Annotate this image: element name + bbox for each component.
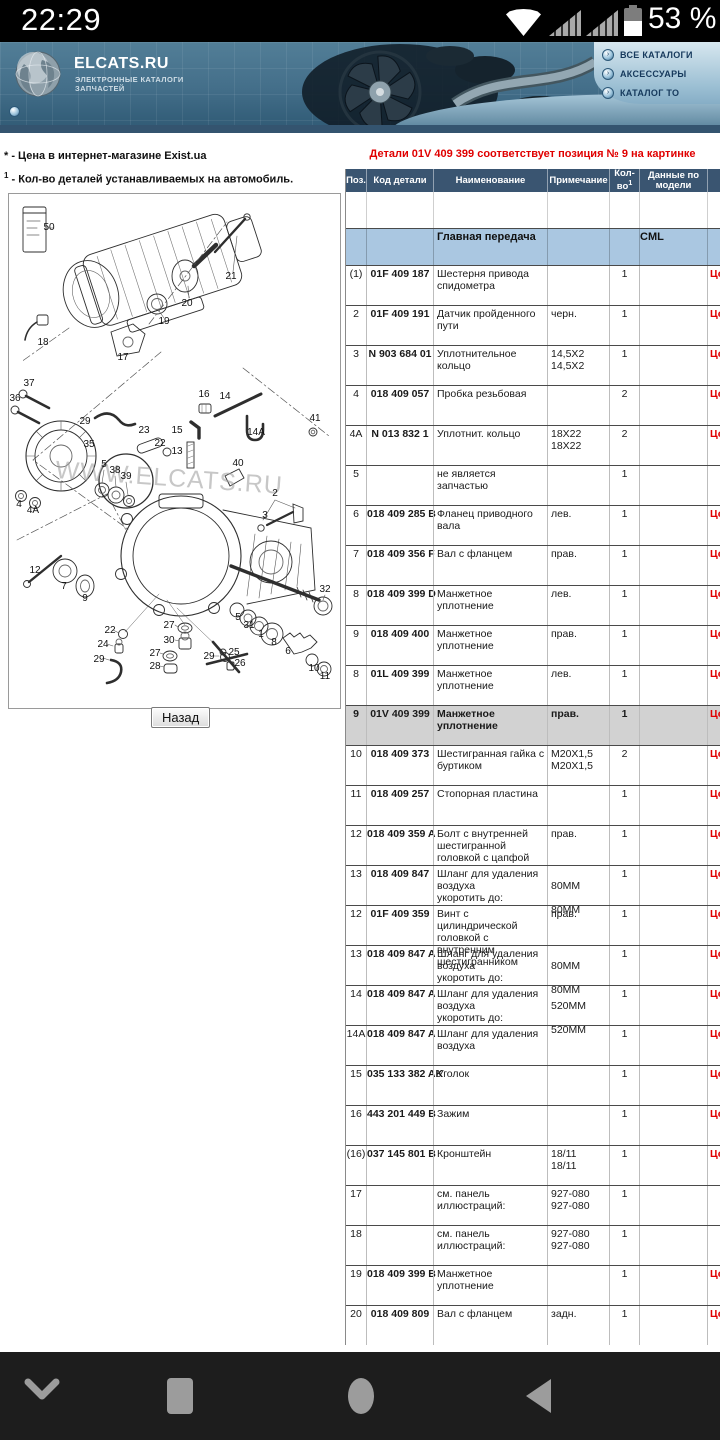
cell-code: 018 409 356 F — [366, 546, 433, 585]
table-row: 14018 409 847 AШланг для удаления воздух… — [346, 985, 720, 1025]
header-nav-item-2[interactable]: ›КАТАЛОГ ТО — [594, 83, 720, 102]
diagram-callout: 4 — [16, 499, 22, 510]
cell-note — [547, 266, 609, 305]
cell-pos: 13 — [346, 946, 366, 985]
cell-model — [639, 786, 707, 825]
cell-model — [639, 426, 707, 465]
cell-code — [366, 1226, 433, 1265]
cell-qty: 1 — [609, 706, 639, 745]
cell-model — [639, 346, 707, 385]
cell-name: Манжетное уплотнение — [433, 626, 547, 665]
diagram-art — [11, 204, 332, 683]
price-link[interactable]: Цена — [707, 426, 720, 465]
cell-note — [547, 466, 609, 505]
diagram-callout: 22 — [154, 438, 166, 449]
diagram-callout: 24 — [97, 639, 109, 650]
table-row: 4018 409 057Пробка резьбовая2Цена — [346, 385, 720, 425]
cell-qty: 1 — [609, 626, 639, 665]
cell-model — [639, 1146, 707, 1185]
header-nav-panel: ›ВСЕ КАТАЛОГИ›АКСЕССУАРЫ›КАТАЛОГ ТО — [594, 42, 720, 104]
back-button[interactable]: Назад — [151, 707, 210, 728]
cell-note: прав. — [547, 626, 609, 665]
cell-name: не является запчастью — [433, 466, 547, 505]
cell-pos: 5 — [346, 466, 366, 505]
cell-pos: 19 — [346, 1266, 366, 1305]
header-nav-label: ВСЕ КАТАЛОГИ — [620, 50, 693, 60]
diagram-callout: 15 — [171, 425, 183, 436]
price-link[interactable]: Цена — [707, 946, 720, 985]
cell-qty: 1 — [609, 786, 639, 825]
cell-price — [707, 1226, 720, 1265]
empty-row — [346, 192, 720, 229]
cell-model — [639, 306, 707, 345]
logo-subtitle: ЭЛЕКТРОННЫЕ КАТАЛОГИ ЗАПЧАСТЕЙ — [75, 75, 184, 93]
diagram-callout: 32 — [319, 584, 331, 595]
cell-pos: 12 — [346, 906, 366, 945]
price-link[interactable]: Цена — [707, 306, 720, 345]
table-row: 19018 409 399 BМанжетное уплотнение1Цена — [346, 1265, 720, 1305]
price-link[interactable]: Цена — [707, 666, 720, 705]
diagram-callout: 26 — [234, 658, 246, 669]
clock: 22:29 — [21, 2, 101, 38]
col-header-note: Примечание — [547, 169, 609, 192]
cell-pos: 16 — [346, 1106, 366, 1145]
cell-model — [639, 386, 707, 425]
diagram-callout: 5 — [235, 612, 241, 623]
cell-pos: (16) — [346, 1146, 366, 1185]
cell-name: Пробка резьбовая — [433, 386, 547, 425]
cell-qty: 1 — [609, 506, 639, 545]
cell-code: 01V 409 399 — [366, 706, 433, 745]
cell-model — [639, 506, 707, 545]
table-row: 5не является запчастью1 — [346, 465, 720, 505]
back-triangle-icon[interactable] — [526, 1379, 551, 1413]
table-row: 15035 133 382 AKУголок1Цена — [346, 1065, 720, 1105]
price-link[interactable]: Цена — [707, 1106, 720, 1145]
diagram-callout: 21 — [225, 271, 237, 282]
cell-model — [639, 266, 707, 305]
cell-code: N 903 684 01 — [366, 346, 433, 385]
col-header-model: Данные по модели — [639, 169, 707, 192]
nav-bullet-icon: › — [602, 49, 614, 61]
cell-name: Болт с внутренней шестигранной головкой … — [433, 826, 547, 865]
cell-pos: 9 — [346, 626, 366, 665]
diagram-callout: 5 — [101, 459, 107, 470]
cell-model — [639, 1106, 707, 1145]
diagram-callout: 13 — [171, 446, 183, 457]
group-model: CML — [639, 229, 707, 265]
status-bar: 22:29 53 % — [0, 0, 720, 42]
table-row: 6018 409 285 BФланец приводного валалев.… — [346, 505, 720, 545]
table-row: 1201F 409 359Винт с цилиндрической голов… — [346, 905, 720, 945]
diagram-callout: 41 — [309, 413, 321, 424]
cell-name: Шестерня привода спидометра — [433, 266, 547, 305]
cell-model — [639, 826, 707, 865]
cell-pos: 10 — [346, 746, 366, 785]
table-row: 16443 201 449 BЗажим1Цена — [346, 1105, 720, 1145]
cell-pos: 12 — [346, 826, 366, 865]
cell-code — [366, 466, 433, 505]
cell-note: M20X1,5 M20X1,5 — [547, 746, 609, 785]
cell-code: 018 409 809 — [366, 1306, 433, 1345]
price-link[interactable]: Цена — [707, 506, 720, 545]
cell-pos: 4A — [346, 426, 366, 465]
parts-table: Поз. Код детали Наименование Примечание … — [345, 169, 720, 1345]
cell-model — [639, 746, 707, 785]
diagram-callout: 2 — [272, 488, 278, 499]
cell-name: Винт с цилиндрической головкой с внутрен… — [433, 906, 547, 945]
cell-qty: 1 — [609, 986, 639, 1025]
table-row: 18см. панель иллюстраций:927-080 927-080… — [346, 1225, 720, 1265]
diagram-callout: 4A — [27, 505, 40, 516]
cell-pos: 3 — [346, 346, 366, 385]
cell-name: Шланг для удаления воздуха укоротить до: — [433, 946, 547, 985]
price-link[interactable]: Цена — [707, 266, 720, 305]
cell-pos: 9 — [346, 706, 366, 745]
diagram-callout: 7 — [61, 581, 67, 592]
col-header-price: Цена — [707, 169, 720, 192]
table-row: 14A018 409 847 AШланг для удаления возду… — [346, 1025, 720, 1065]
cell-name: Шланг для удаления воздуха — [433, 1026, 547, 1065]
table-row: 801L 409 399Манжетное уплотнениелев.1Цен… — [346, 665, 720, 705]
col-header-qty: Кол-во1 — [609, 169, 639, 192]
cell-note — [547, 1066, 609, 1105]
battery-percent: 53 % — [648, 2, 716, 36]
price-link[interactable]: Цена — [707, 706, 720, 745]
cell-pos: 8 — [346, 586, 366, 625]
diagram-callout: 30 — [163, 635, 175, 646]
price-link[interactable]: Цена — [707, 1066, 720, 1105]
cell-qty: 1 — [609, 1226, 639, 1265]
table-header-row: Поз. Код детали Наименование Примечание … — [346, 169, 720, 192]
logo-subtitle-line2: ЗАПЧАСТЕЙ — [75, 84, 184, 93]
cell-note — [547, 1106, 609, 1145]
diagram-callout: 16 — [198, 389, 210, 400]
header-nav-item-1[interactable]: ›АКСЕССУАРЫ — [594, 64, 720, 83]
cell-note: 14,5X2 14,5X2 — [547, 346, 609, 385]
cell-pos: 11 — [346, 786, 366, 825]
cell-code: 018 409 285 B — [366, 506, 433, 545]
cell-code: 018 409 847 A — [366, 986, 433, 1025]
header-nav-item-0[interactable]: ›ВСЕ КАТАЛОГИ — [594, 45, 720, 64]
table-row: 201F 409 191Датчик пройденного путичерн.… — [346, 305, 720, 345]
price-link[interactable]: Цена — [707, 626, 720, 665]
cell-code: 037 145 801 B — [366, 1146, 433, 1185]
cell-qty: 1 — [609, 866, 639, 905]
cell-name: Манжетное уплотнение — [433, 666, 547, 705]
logo-title[interactable]: ELCATS.RU — [74, 55, 169, 73]
cell-qty: 1 — [609, 1266, 639, 1305]
diagram-callout: 36 — [9, 393, 21, 404]
cell-code: 018 409 057 — [366, 386, 433, 425]
diagram-callout: 39 — [120, 471, 132, 482]
price-link[interactable]: Цена — [707, 906, 720, 945]
cell-pos: (1) — [346, 266, 366, 305]
cell-pos: 20 — [346, 1306, 366, 1345]
cell-qty: 2 — [609, 426, 639, 465]
diagram-callout: 23 — [138, 425, 150, 436]
diagram-callout: 8 — [271, 637, 277, 648]
wifi-icon — [506, 9, 541, 36]
diagram-callout: 11 — [320, 671, 331, 682]
header-bullet-icon — [9, 106, 20, 117]
cell-code: N 013 832 1 — [366, 426, 433, 465]
cell-name: Фланец приводного вала — [433, 506, 547, 545]
cell-pos: 6 — [346, 506, 366, 545]
table-row: 901V 409 399Манжетное уплотнениеправ.1Це… — [346, 705, 720, 745]
nav-bullet-icon: › — [602, 87, 614, 99]
cell-code: 018 409 400 — [366, 626, 433, 665]
price-link[interactable]: Цена — [707, 1146, 720, 1185]
group-row: Главная передача CML — [346, 229, 720, 265]
cell-code: 018 409 847 A — [366, 1026, 433, 1065]
diagram-callout: 35 — [83, 439, 95, 450]
logo-subtitle-line1: ЭЛЕКТРОННЫЕ КАТАЛОГИ — [75, 75, 184, 84]
cell-qty: 1 — [609, 1146, 639, 1185]
diagram-callout: 22 — [104, 625, 116, 636]
cell-note: прав. — [547, 826, 609, 865]
table-row: 20018 409 809Вал с фланцемзадн.1Цена — [346, 1305, 720, 1345]
table-row: 11018 409 257Стопорная пластина1Цена — [346, 785, 720, 825]
cell-model — [639, 666, 707, 705]
cell-qty: 1 — [609, 1026, 639, 1065]
battery-icon — [624, 8, 642, 36]
price-link[interactable]: Цена — [707, 586, 720, 625]
group-name: Главная передача — [433, 229, 547, 265]
diagram-watermark: WWW.ELCATS.RU — [55, 456, 284, 500]
cell-note: лев. — [547, 586, 609, 625]
diagram-callout: 50 — [43, 222, 55, 233]
cell-code: 01F 409 191 — [366, 306, 433, 345]
cell-note — [547, 386, 609, 425]
highlight-alert: Детали 01V 409 399 соответствует позиция… — [345, 148, 720, 160]
table-row: 3N 903 684 01Уплотнительное кольцо14,5X2… — [346, 345, 720, 385]
cell-note: прав. — [547, 906, 609, 945]
diagram-callout: 29 — [79, 416, 91, 427]
table-row: 8018 409 399 DМанжетное уплотнениелев.1Ц… — [346, 585, 720, 625]
cell-name: Уголок — [433, 1066, 547, 1105]
diagram-callout: 3 — [262, 510, 268, 521]
cell-note: 80MM 80MM — [547, 946, 609, 985]
table-row: 7018 409 356 FВал с фланцемправ.1Цена — [346, 545, 720, 585]
cell-note — [547, 1026, 609, 1065]
price-note: * - Цена в интернет-магазине Exist.ua — [4, 150, 206, 162]
cell-model — [639, 1226, 707, 1265]
table-row: 17см. панель иллюстраций:927-080 927-080… — [346, 1185, 720, 1225]
price-link[interactable]: Цена — [707, 986, 720, 1025]
table-row: (16)037 145 801 BКронштейн18/11 18/111Це… — [346, 1145, 720, 1185]
price-link[interactable]: Цена — [707, 1306, 720, 1345]
cell-name: Зажим — [433, 1106, 547, 1145]
cell-code: 018 409 847 — [366, 866, 433, 905]
diagram-callout: 38 — [109, 465, 121, 476]
cell-qty: 1 — [609, 346, 639, 385]
cell-name: Датчик пройденного пути — [433, 306, 547, 345]
cell-price — [707, 466, 720, 505]
cell-name: Вал с фланцем — [433, 546, 547, 585]
cell-model — [639, 1026, 707, 1065]
table-row: 13018 409 847Шланг для удаления воздуха … — [346, 865, 720, 905]
price-link[interactable]: Цена — [707, 866, 720, 905]
cell-code: 018 409 847 A — [366, 946, 433, 985]
cell-name: Шланг для удаления воздуха укоротить до: — [433, 986, 547, 1025]
header-nav-label: КАТАЛОГ ТО — [620, 88, 679, 98]
cell-note — [547, 786, 609, 825]
table-body: (1)01F 409 187Шестерня привода спидометр… — [346, 265, 720, 1345]
price-link[interactable]: Цена — [707, 826, 720, 865]
cell-code: 018 409 399 D — [366, 586, 433, 625]
diagram-callout: 25 — [228, 647, 240, 658]
price-link[interactable]: Цена — [707, 1026, 720, 1065]
diagram-callout: 29 — [93, 654, 105, 665]
cell-name: Манжетное уплотнение — [433, 1266, 547, 1305]
cell-model — [639, 1066, 707, 1105]
cell-qty: 1 — [609, 266, 639, 305]
cell-qty: 1 — [609, 1186, 639, 1225]
cell-qty: 1 — [609, 546, 639, 585]
cell-code: 01F 409 187 — [366, 266, 433, 305]
cell-pos: 7 — [346, 546, 366, 585]
cell-pos: 8 — [346, 666, 366, 705]
cell-note: 18/11 18/11 — [547, 1146, 609, 1185]
diagram-callout: 9 — [82, 593, 88, 604]
cell-price — [707, 1186, 720, 1225]
cell-qty: 1 — [609, 946, 639, 985]
cell-qty: 1 — [609, 586, 639, 625]
table-row: 9018 409 400Манжетное уплотнениеправ.1Це… — [346, 625, 720, 665]
qty-note: 1 - Кол-во деталей устанавливаемых на ав… — [4, 171, 293, 186]
cell-name: Манжетное уплотнение — [433, 706, 547, 745]
cell-note: 18X22 18X22 — [547, 426, 609, 465]
table-row: 12018 409 359 AБолт с внутренней шестигр… — [346, 825, 720, 865]
diagram-callout: 14A — [247, 427, 265, 438]
site-header: ELCATS.RU ЭЛЕКТРОННЫЕ КАТАЛОГИ ЗАПЧАСТЕЙ… — [0, 42, 720, 133]
cell-code: 01L 409 399 — [366, 666, 433, 705]
table-row: (1)01F 409 187Шестерня привода спидометр… — [346, 265, 720, 305]
diagram-callout: 6 — [285, 646, 291, 657]
cell-model — [639, 946, 707, 985]
android-nav-bar — [0, 1352, 720, 1440]
price-link[interactable]: Цена — [707, 346, 720, 385]
table-row: 13018 409 847 AШланг для удаления воздух… — [346, 945, 720, 985]
diagram-callout: 37 — [23, 378, 35, 389]
col-header-pos: Поз. — [346, 169, 366, 192]
cell-pos: 13 — [346, 866, 366, 905]
diagram-callout: 27 — [163, 620, 175, 631]
cell-code: 018 409 359 A — [366, 826, 433, 865]
cell-model — [639, 706, 707, 745]
cell-qty: 1 — [609, 1306, 639, 1345]
cell-qty: 1 — [609, 1106, 639, 1145]
header-nav-label: АКСЕССУАРЫ — [620, 69, 687, 79]
home-circle-icon[interactable] — [348, 1378, 374, 1414]
cell-code: 01F 409 359 — [366, 906, 433, 945]
cell-code: 443 201 449 B — [366, 1106, 433, 1145]
cell-note: 80MM 80MM — [547, 866, 609, 905]
diagram-callout: 10 — [308, 663, 320, 674]
cell-name: Вал с фланцем — [433, 1306, 547, 1345]
parts-diagram[interactable]: WWW.ELCATS.RU 50212019181737362923221614… — [8, 193, 341, 709]
cell-model — [639, 866, 707, 905]
cell-qty: 1 — [609, 906, 639, 945]
nav-bullet-icon: › — [602, 68, 614, 80]
diagram-callout: 12 — [29, 565, 41, 576]
cell-code — [366, 1186, 433, 1225]
diagram-callout: 19 — [158, 316, 170, 327]
price-link[interactable]: Цена — [707, 546, 720, 585]
cell-model — [639, 1266, 707, 1305]
cell-name: Манжетное уплотнение — [433, 586, 547, 625]
recents-square-icon[interactable] — [167, 1378, 193, 1414]
table-row: 4AN 013 832 1Уплотнит. кольцо18X22 18X22… — [346, 425, 720, 465]
cell-name: см. панель иллюстраций: — [433, 1186, 547, 1225]
diagram-callout: 18 — [37, 337, 49, 348]
cell-model — [639, 1306, 707, 1345]
cell-model — [639, 986, 707, 1025]
cell-name: см. панель иллюстраций: — [433, 1226, 547, 1265]
col-header-name: Наименование — [433, 169, 547, 192]
cell-name: Уплотнительное кольцо — [433, 346, 547, 385]
cell-note: 927-080 927-080 — [547, 1186, 609, 1225]
price-link[interactable]: Цена — [707, 386, 720, 425]
globe-logo-icon — [14, 50, 62, 98]
cell-pos: 14A — [346, 1026, 366, 1065]
cell-note: 520MM 520MM — [547, 986, 609, 1025]
cell-qty: 1 — [609, 666, 639, 705]
diagram-svg: WWW.ELCATS.RU 50212019181737362923221614… — [9, 194, 340, 706]
diagram-callout: 29 — [203, 651, 215, 662]
header-bottom-strip — [0, 125, 720, 133]
cell-note: задн. — [547, 1306, 609, 1345]
diagram-callout: 40 — [232, 458, 244, 469]
diagram-callout: 1 — [258, 629, 264, 640]
diagram-callout: 31 — [243, 620, 255, 631]
diagram-callout: 14 — [219, 391, 231, 402]
cell-code: 035 133 382 AK — [366, 1066, 433, 1105]
cell-note: черн. — [547, 306, 609, 345]
cell-qty: 1 — [609, 466, 639, 505]
cell-note — [547, 1266, 609, 1305]
cell-qty: 1 — [609, 306, 639, 345]
cell-pos: 15 — [346, 1066, 366, 1105]
cell-pos: 17 — [346, 1186, 366, 1225]
cell-pos: 18 — [346, 1226, 366, 1265]
price-link[interactable]: Цена — [707, 746, 720, 785]
cell-note: лев. — [547, 666, 609, 705]
hide-keyboard-chevron-icon[interactable] — [28, 1382, 56, 1396]
cell-model — [639, 906, 707, 945]
cell-note: 927-080 927-080 — [547, 1226, 609, 1265]
price-link[interactable]: Цена — [707, 1266, 720, 1305]
cell-note: лев. — [547, 506, 609, 545]
cell-pos: 4 — [346, 386, 366, 425]
price-link[interactable]: Цена — [707, 786, 720, 825]
cell-name: Шланг для удаления воздуха укоротить до: — [433, 866, 547, 905]
signal-icon-1 — [549, 10, 581, 36]
cell-model — [639, 546, 707, 585]
col-header-code: Код детали — [366, 169, 433, 192]
diagram-callout: 20 — [181, 298, 193, 309]
cell-qty: 1 — [609, 826, 639, 865]
cell-code: 018 409 399 B — [366, 1266, 433, 1305]
cell-qty: 1 — [609, 1066, 639, 1105]
table-row: 10018 409 373Шестигранная гайка с буртик… — [346, 745, 720, 785]
signal-icon-2 — [586, 10, 618, 36]
cell-pos: 2 — [346, 306, 366, 345]
cell-name: Уплотнит. кольцо — [433, 426, 547, 465]
diagram-callout: 17 — [117, 352, 129, 363]
cell-name: Кронштейн — [433, 1146, 547, 1185]
